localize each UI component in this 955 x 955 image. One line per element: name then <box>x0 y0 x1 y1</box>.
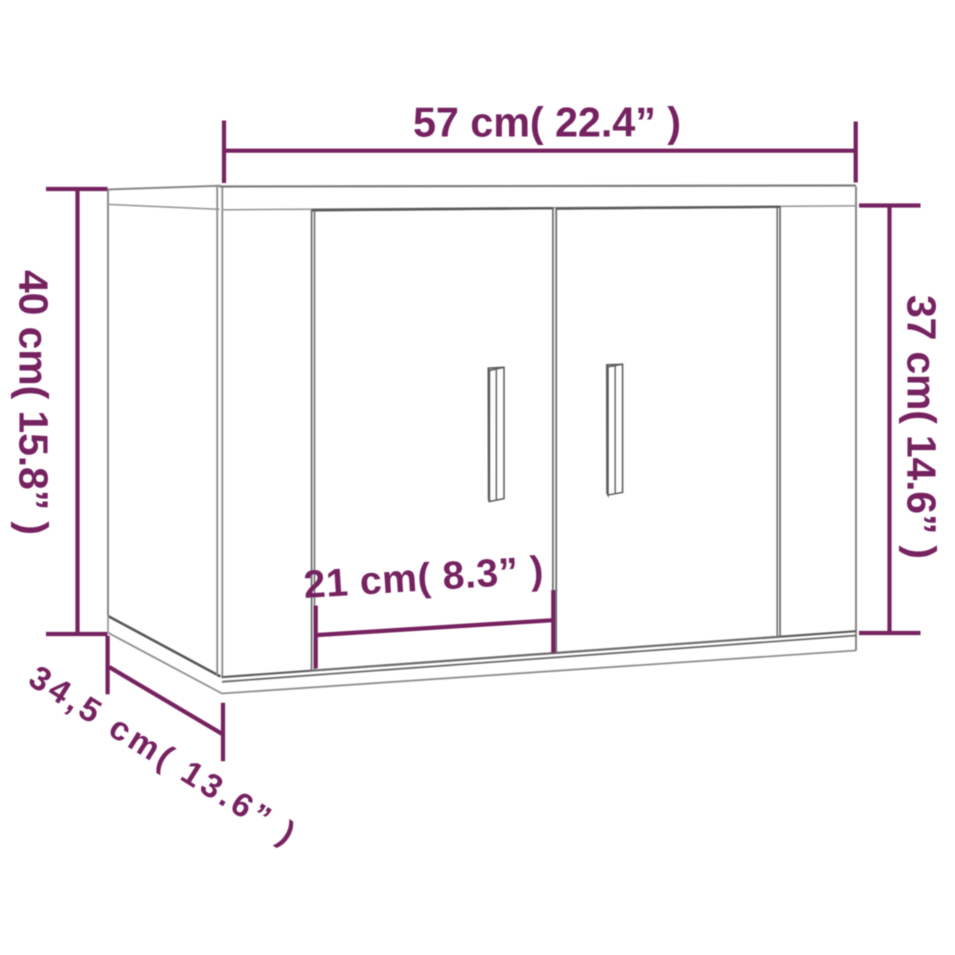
svg-text:37 cm( 14.6” ): 37 cm( 14.6” ) <box>899 295 945 559</box>
svg-text:40 cm( 15.8” ): 40 cm( 15.8” ) <box>11 270 57 535</box>
svg-text:57 cm( 22.4” ): 57 cm( 22.4” ) <box>413 100 681 146</box>
